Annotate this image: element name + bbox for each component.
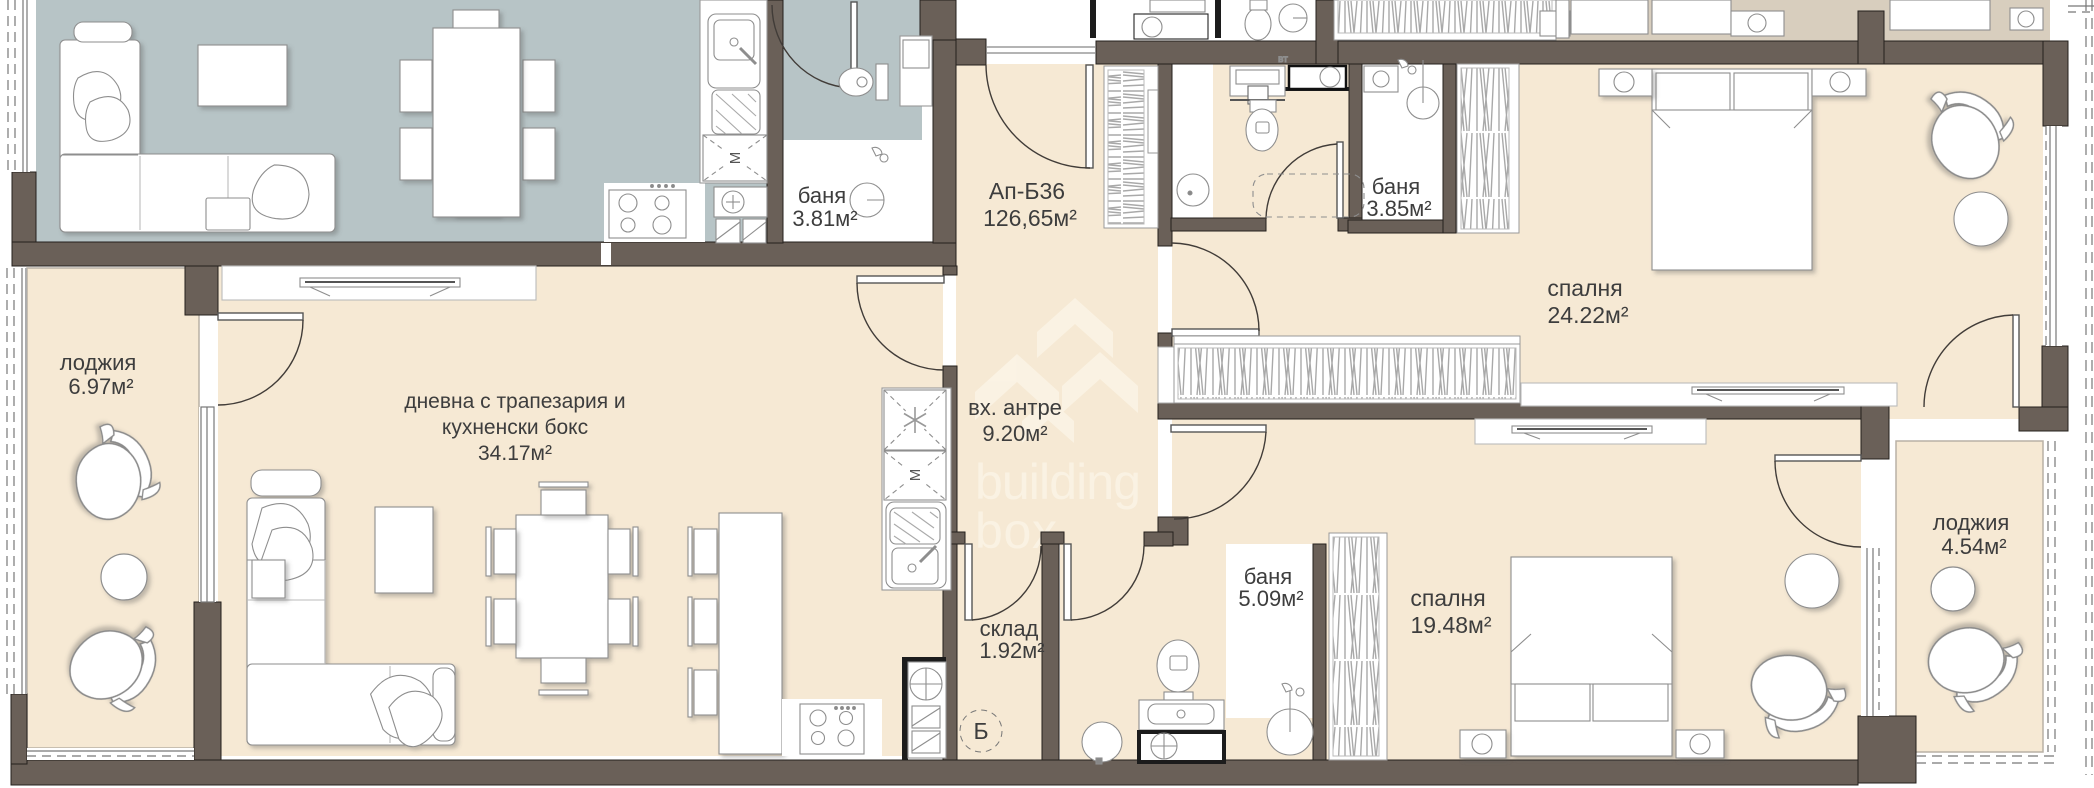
svg-text:лоджия: лоджия [1933, 510, 2010, 535]
svg-text:Б: Б [973, 718, 988, 744]
svg-text:4.54м²: 4.54м² [1941, 534, 2006, 559]
svg-text:9.20м²: 9.20м² [982, 421, 1047, 446]
svg-text:3.85м²: 3.85м² [1366, 196, 1431, 221]
svg-text:6.97м²: 6.97м² [68, 374, 133, 399]
svg-text:вт: вт [1278, 54, 1288, 65]
svg-text:спалня: спалня [1410, 585, 1485, 611]
svg-text:M: M [727, 152, 744, 165]
svg-text:дневна с трапезария и: дневна с трапезария и [404, 390, 625, 413]
svg-text:вх. антре: вх. антре [968, 395, 1062, 420]
svg-text:кухненски бокс: кухненски бокс [442, 416, 588, 439]
svg-text:126,65м²: 126,65м² [983, 205, 1077, 231]
svg-text:3.81м²: 3.81м² [792, 206, 857, 231]
svg-text:24.22м²: 24.22м² [1547, 302, 1628, 328]
svg-text:Ап-Б36: Ап-Б36 [989, 178, 1065, 204]
svg-text:5.09м²: 5.09м² [1238, 586, 1303, 611]
svg-text:building: building [975, 454, 1141, 510]
svg-text:спалня: спалня [1547, 275, 1622, 301]
svg-text:1.92м²: 1.92м² [979, 638, 1044, 663]
svg-text:19.48м²: 19.48м² [1410, 612, 1491, 638]
svg-text:M: M [907, 469, 924, 482]
svg-text:лоджия: лоджия [60, 350, 137, 375]
svg-text:34.17м²: 34.17м² [478, 442, 552, 465]
svg-text:баня: баня [798, 183, 846, 208]
